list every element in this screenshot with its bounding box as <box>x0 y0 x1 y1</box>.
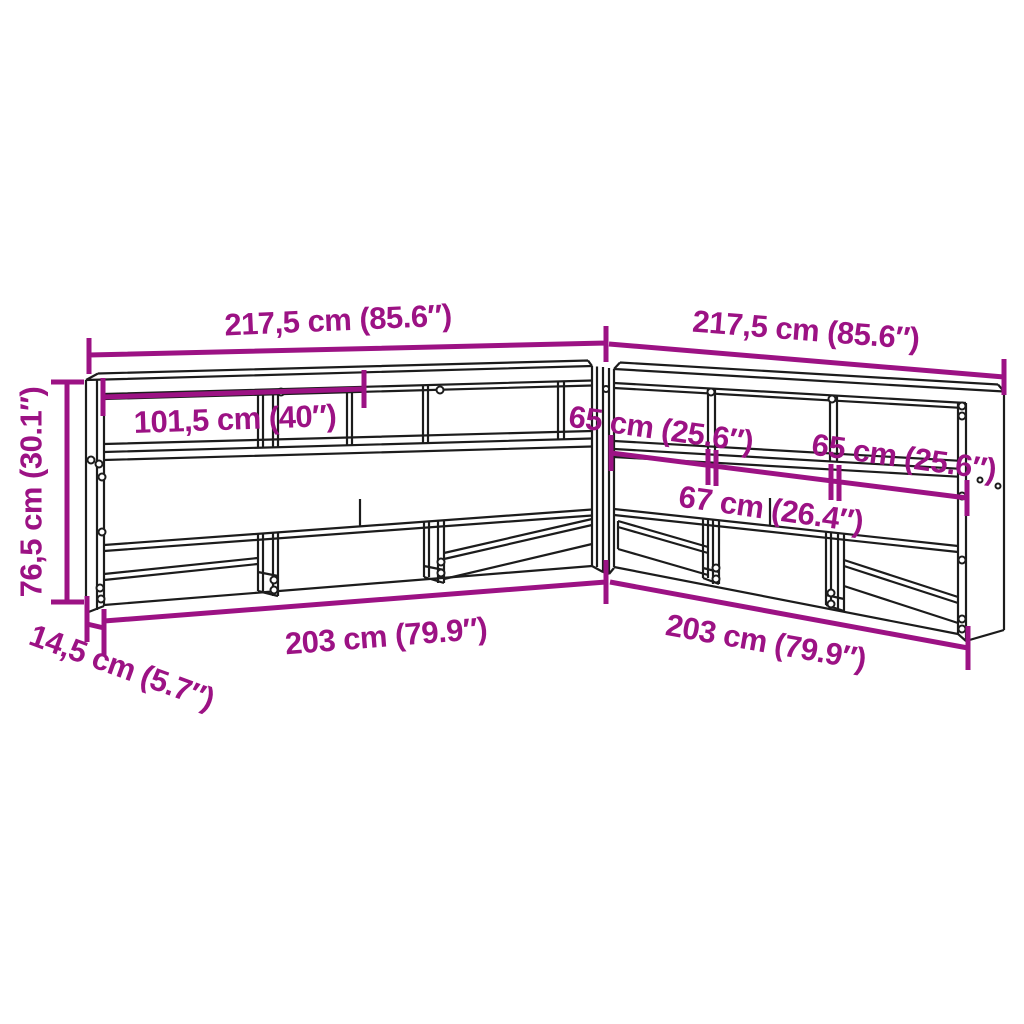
dimension-diagram: 217,5 cm (85.6″) 217,5 cm (85.6″) 101,5 … <box>0 0 1024 1024</box>
dim-label-left-wing-total-width: 217,5 cm (85.6″) <box>224 298 453 343</box>
dim-left-top-shelf-width: 101,5 cm (40″) <box>103 370 364 440</box>
dim-label-left-wing-inner-width: 203 cm (79.9″) <box>284 611 489 662</box>
dim-height: 76,5 cm (30.1″) <box>14 382 85 602</box>
dim-label-right-wing-total-width: 217,5 cm (85.6″) <box>691 304 920 357</box>
dim-label-height: 76,5 cm (30.1″) <box>14 387 49 598</box>
left-wing <box>86 361 592 614</box>
dim-left-wing-inner-width: 203 cm (79.9″) <box>104 560 606 661</box>
dimension-annotations: 217,5 cm (85.6″) 217,5 cm (85.6″) 101,5 … <box>14 298 1005 717</box>
dim-label-right-shelf-section-1: 65 cm (25.6″) <box>567 399 756 460</box>
dim-label-right-wing-inner-width: 203 cm (79.9″) <box>663 607 869 677</box>
product-image-canvas: 217,5 cm (85.6″) 217,5 cm (85.6″) 101,5 … <box>0 0 1024 1024</box>
dim-right-shelf-sections: 65 cm (25.6″) 67 cm (26.4″) 65 cm (25.6″… <box>567 399 999 540</box>
right-end-panel <box>958 392 1004 642</box>
dim-label-left-top-shelf-width: 101,5 cm (40″) <box>133 398 337 440</box>
dim-label-depth: 14,5 cm (5.7″) <box>25 617 219 716</box>
dim-right-wing-inner-width: 203 cm (79.9″) <box>610 582 968 677</box>
